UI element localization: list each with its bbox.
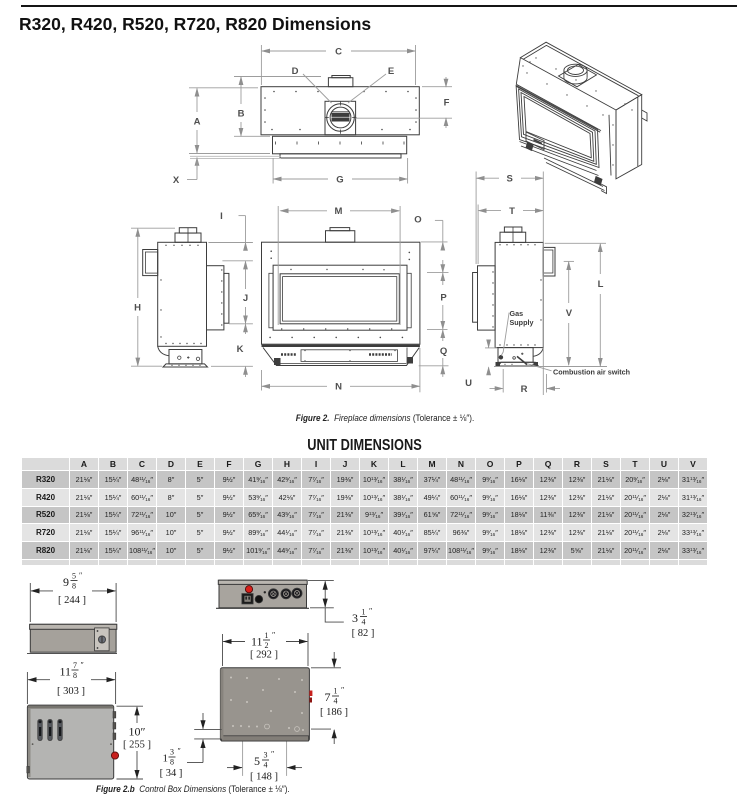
svg-text:4: 4 [362, 618, 366, 627]
svg-text:B: B [238, 109, 245, 120]
svg-text:R: R [521, 384, 528, 395]
svg-text:[ 148 ]: [ 148 ] [250, 772, 278, 783]
svg-text:1: 1 [362, 608, 366, 617]
svg-text:T: T [509, 206, 515, 217]
svg-text:″: ″ [79, 571, 82, 580]
svg-text:10″: 10″ [129, 725, 146, 739]
svg-text:X: X [173, 175, 180, 186]
svg-text:5: 5 [72, 572, 76, 581]
svg-text:″: ″ [369, 607, 372, 616]
svg-text:U: U [465, 378, 472, 389]
svg-text:C: C [335, 47, 342, 58]
svg-text:I: I [220, 211, 223, 222]
svg-text:K: K [237, 344, 244, 355]
svg-text:[ 34 ]: [ 34 ] [160, 768, 183, 779]
svg-text:E: E [388, 66, 394, 77]
svg-text:P: P [440, 293, 447, 304]
svg-text:N: N [335, 382, 342, 393]
svg-text:[ 186 ]: [ 186 ] [320, 707, 348, 718]
svg-text:1: 1 [334, 687, 338, 696]
svg-text:8: 8 [72, 582, 76, 591]
svg-text:9: 9 [63, 575, 69, 589]
svg-text:3: 3 [352, 611, 358, 625]
svg-text:8: 8 [170, 758, 174, 767]
svg-text:3: 3 [264, 751, 268, 760]
svg-text:″: ″ [178, 747, 181, 756]
svg-text:1: 1 [265, 631, 269, 640]
svg-text:7: 7 [73, 661, 77, 670]
svg-text:1: 1 [163, 753, 169, 765]
svg-text:J: J [243, 293, 248, 304]
svg-text:[ 303 ]: [ 303 ] [57, 686, 85, 697]
svg-text:D: D [292, 66, 299, 77]
svg-text:5: 5 [254, 754, 260, 768]
svg-text:[ 244 ]: [ 244 ] [58, 595, 86, 606]
svg-text:L: L [598, 279, 604, 290]
svg-text:G: G [336, 175, 343, 186]
svg-text:V: V [566, 308, 573, 319]
svg-text:4: 4 [264, 761, 268, 770]
svg-text:Q: Q [440, 346, 447, 357]
svg-text:4: 4 [334, 697, 338, 706]
svg-text:A: A [194, 117, 201, 128]
svg-text:[ 82 ]: [ 82 ] [352, 628, 375, 639]
svg-text:8: 8 [73, 671, 77, 680]
svg-text:″: ″ [81, 661, 84, 670]
svg-text:Combustion air switch: Combustion air switch [553, 368, 630, 377]
svg-text:11: 11 [60, 665, 72, 679]
svg-text:[ 255 ]: [ 255 ] [123, 740, 151, 751]
svg-text:S: S [507, 174, 513, 185]
svg-text:M: M [335, 206, 343, 217]
svg-text:F: F [444, 98, 450, 109]
svg-text:3: 3 [170, 748, 174, 757]
svg-text:Gas: Gas [510, 309, 524, 318]
svg-text:7: 7 [325, 690, 331, 704]
svg-text:Supply: Supply [510, 318, 534, 327]
svg-text:H: H [134, 303, 141, 314]
svg-text:″: ″ [271, 750, 274, 759]
svg-text:11: 11 [251, 635, 263, 649]
svg-text:″: ″ [341, 686, 344, 695]
svg-text:″: ″ [272, 631, 275, 640]
svg-text:O: O [414, 214, 421, 225]
svg-text:[ 292 ]: [ 292 ] [250, 650, 278, 661]
